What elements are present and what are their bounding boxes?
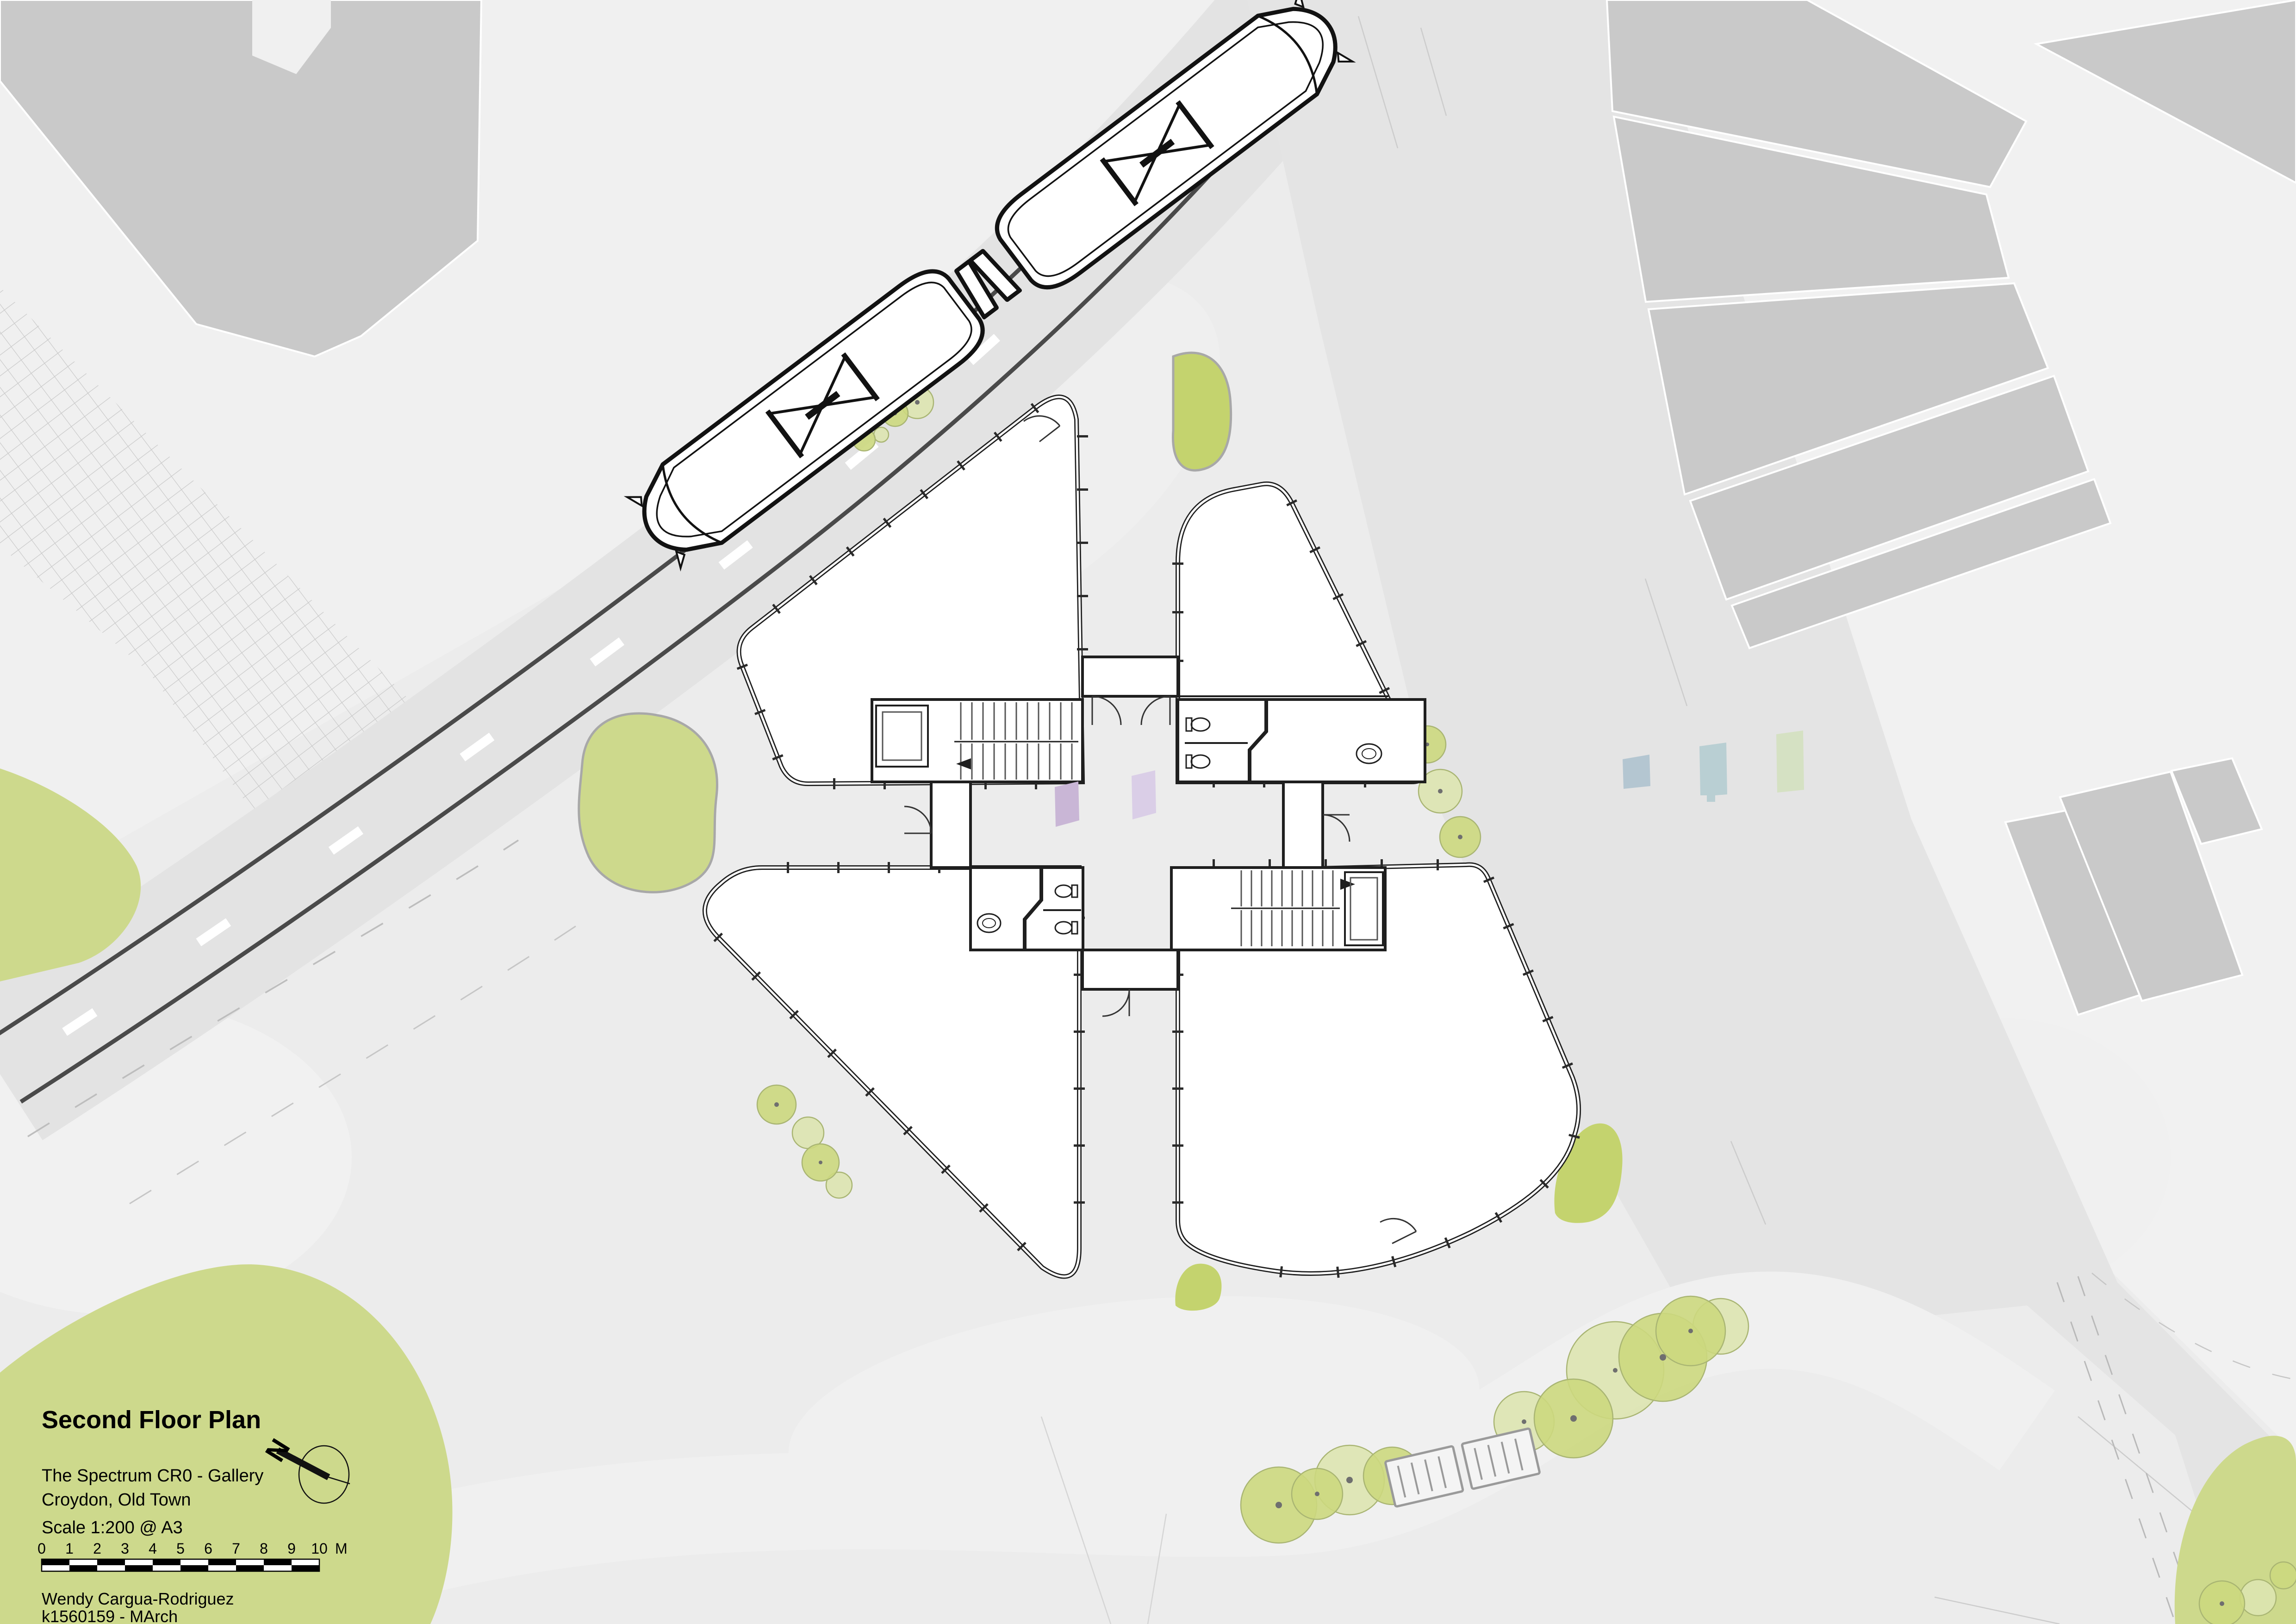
svg-text:5: 5 (176, 1540, 185, 1557)
svg-text:4: 4 (149, 1540, 157, 1557)
svg-text:3: 3 (121, 1540, 129, 1557)
bridge-north (1083, 657, 1178, 696)
svg-text:9: 9 (287, 1540, 296, 1557)
scale-bar-rule (42, 1559, 319, 1571)
svg-text:2: 2 (93, 1540, 101, 1557)
svg-text:6: 6 (204, 1540, 212, 1557)
project-name: The Spectrum CR0 - Gallery (42, 1466, 263, 1486)
panel-green (1776, 731, 1804, 793)
svg-text:0: 0 (37, 1540, 46, 1557)
corridor-west (931, 782, 971, 868)
core-wc-northeast (1178, 700, 1425, 782)
corridor-east (1283, 782, 1323, 868)
author-name: Wendy Cargua-Rodriguez (42, 1589, 234, 1608)
grass-north-blob (1173, 353, 1231, 470)
project-location: Croydon, Old Town (42, 1490, 191, 1510)
scale-unit: M (335, 1540, 348, 1557)
author-id: k1560159 - MArch (42, 1607, 178, 1624)
scale-note: Scale 1:200 @ A3 (42, 1518, 183, 1537)
grass-kidney (579, 713, 717, 892)
svg-text:8: 8 (260, 1540, 268, 1557)
site-plan-sheet: Second Floor Plan The Spectrum CR0 - Gal… (0, 0, 2296, 1624)
page-title: Second Floor Plan (42, 1406, 261, 1434)
bridge-south (1083, 950, 1178, 989)
panel-blue (1623, 755, 1650, 789)
svg-text:7: 7 (232, 1540, 240, 1557)
core-wc-southwest (971, 868, 1083, 950)
svg-text:1: 1 (65, 1540, 74, 1557)
svg-text:10: 10 (311, 1540, 328, 1557)
panel-teal (1699, 743, 1727, 802)
